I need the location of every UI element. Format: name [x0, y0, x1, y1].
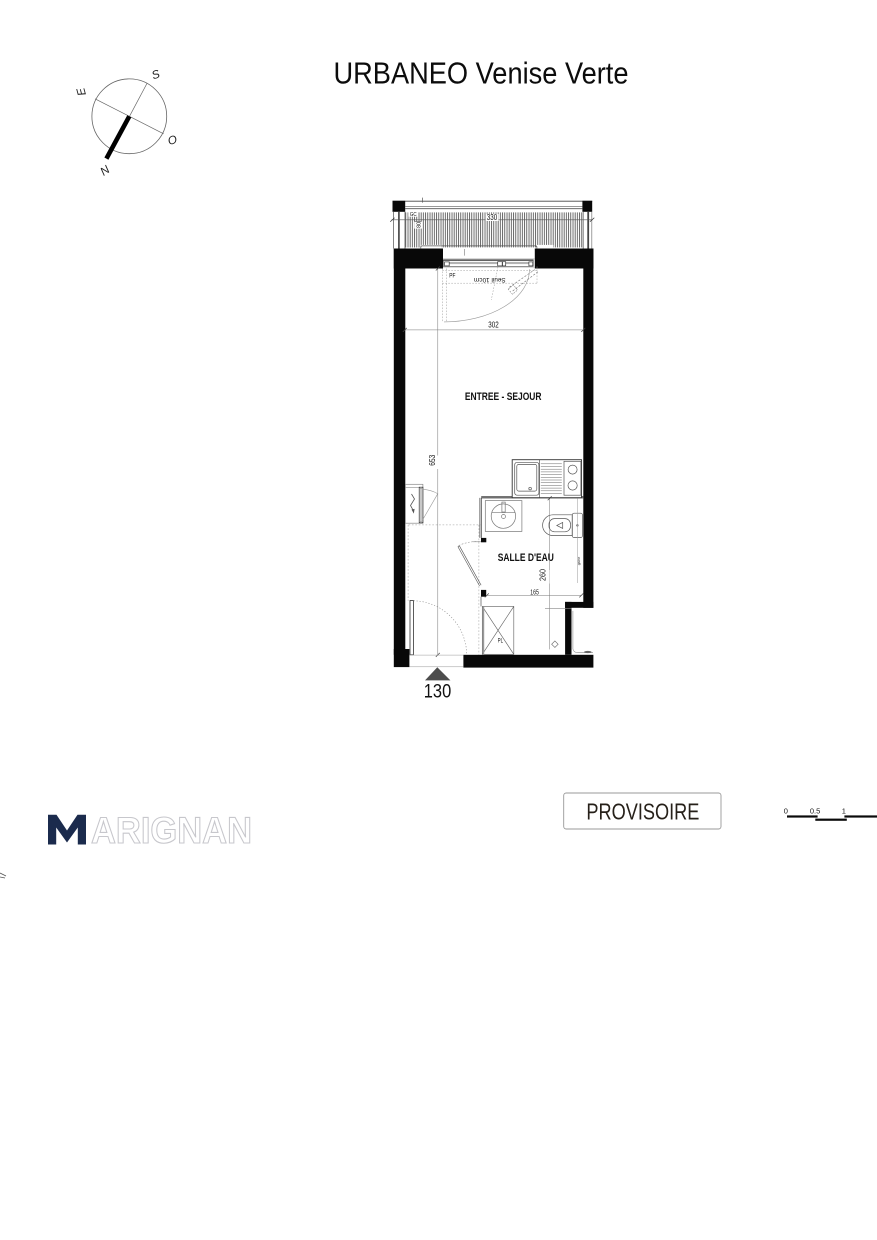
svg-text:Seuil 10cm: Seuil 10cm — [474, 276, 506, 283]
svg-text:PROVISOIRE: PROVISOIRE — [586, 799, 699, 825]
svg-text:gaine: gaine — [577, 557, 581, 566]
svg-text:URBANEO Venise Verte: URBANEO Venise Verte — [334, 55, 629, 90]
svg-text:SALLE D'EAU: SALLE D'EAU — [498, 552, 554, 564]
svg-text:PF: PF — [449, 273, 455, 280]
svg-text:0.5: 0.5 — [810, 807, 820, 816]
svg-text:PL: PL — [498, 639, 504, 645]
svg-text:80: 80 — [416, 222, 422, 228]
svg-text:ENTREE - SEJOUR: ENTREE - SEJOUR — [465, 391, 542, 403]
svg-text:1: 1 — [842, 807, 846, 816]
svg-text:260: 260 — [538, 569, 547, 581]
svg-text:130: 130 — [424, 682, 451, 703]
svg-text:653: 653 — [428, 454, 437, 465]
svg-text:GC: GC — [410, 212, 417, 218]
svg-text:330: 330 — [487, 213, 498, 222]
svg-text:ARIGNAN: ARIGNAN — [91, 810, 252, 851]
svg-text:302: 302 — [488, 320, 499, 329]
svg-text:0: 0 — [784, 807, 788, 816]
svg-text:165: 165 — [530, 588, 539, 597]
